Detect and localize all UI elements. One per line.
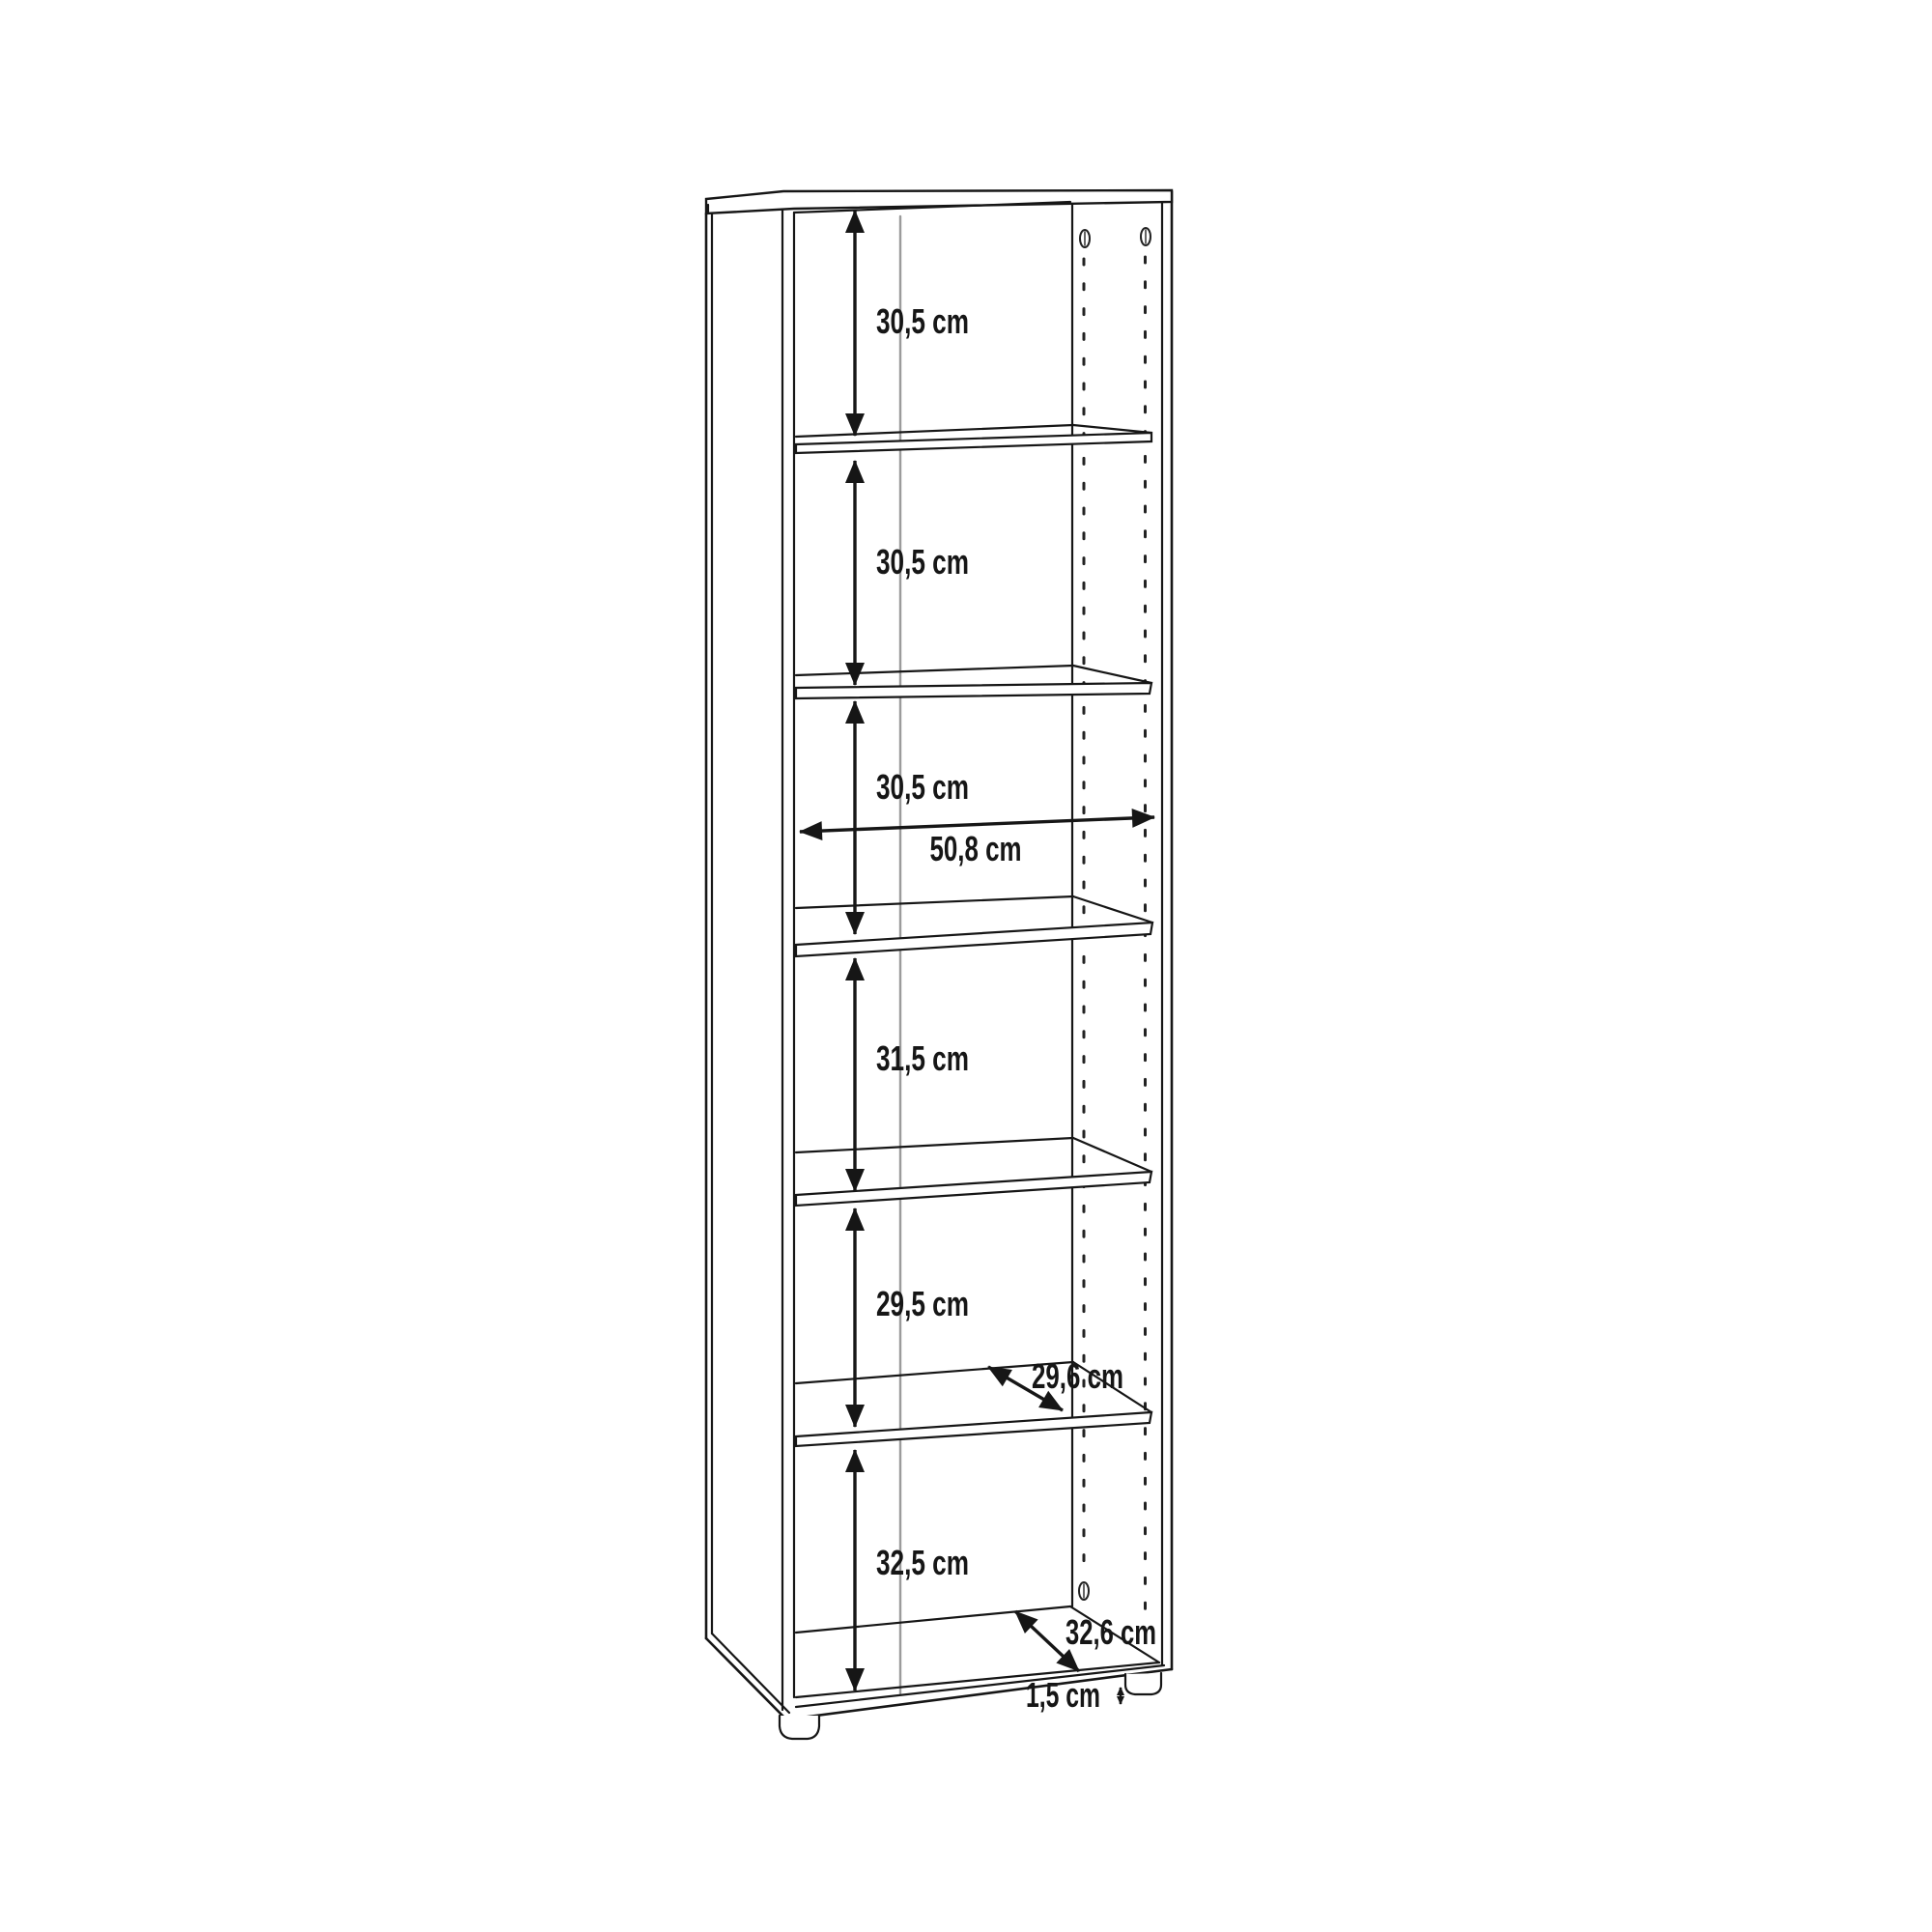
- left-foot: [780, 1716, 819, 1739]
- dim-label-compartment-5: 29,5 cm: [876, 1284, 969, 1323]
- left-side-panel: [706, 208, 794, 1719]
- shelf-front-face: [796, 683, 1151, 698]
- dim-label-foot-height: 1,5 cm: [1026, 1675, 1100, 1715]
- bookcase-dimension-diagram: 30,5 cm 30,5 cm 30,5 cm 31,5 cm 29,5 cm …: [0, 0, 1932, 1932]
- top-panel-slab: [706, 190, 1172, 213]
- shelf-1: [796, 425, 1151, 453]
- shelf-4: [796, 1138, 1151, 1206]
- peg-slot-icon: [1080, 230, 1090, 247]
- dim-label-compartment-4: 31,5 cm: [876, 1038, 969, 1078]
- dimension-labels: 30,5 cm 30,5 cm 30,5 cm 31,5 cm 29,5 cm …: [876, 301, 1156, 1715]
- dim-label-compartment-1: 30,5 cm: [876, 301, 969, 341]
- furniture-dimension-sheet: 30,5 cm 30,5 cm 30,5 cm 31,5 cm 29,5 cm …: [0, 0, 1932, 1932]
- shelf-back-edge: [796, 666, 1073, 675]
- left-wall-bottom-slant-inner: [712, 1634, 789, 1713]
- shelf-end-edge: [1073, 425, 1151, 433]
- plinth-mid-edge: [796, 1665, 1164, 1707]
- floor-back-edge: [796, 1606, 1070, 1633]
- shelf-back-edge: [796, 425, 1073, 437]
- shelf-front-face: [796, 433, 1151, 453]
- dim-label-bottom-depth: 32,6 cm: [1065, 1612, 1156, 1652]
- peg-slot-icon: [1079, 1582, 1089, 1600]
- shelf-back-edge: [796, 896, 1073, 908]
- peg-slot-icon: [1141, 228, 1151, 245]
- shelf-end-edge: [1073, 666, 1151, 683]
- dim-label-compartment-3: 30,5 cm: [876, 767, 969, 807]
- right-foot: [1125, 1673, 1161, 1694]
- shelf-2: [796, 666, 1151, 698]
- shelf-front-face: [796, 923, 1152, 956]
- left-wall-bottom-slant-outer: [706, 1638, 786, 1719]
- shelf-end-edge: [1073, 1138, 1151, 1172]
- dim-label-compartment-2: 30,5 cm: [876, 542, 969, 582]
- dim-label-inner-width: 50,8 cm: [930, 829, 1022, 868]
- top-panel: [706, 190, 1172, 213]
- cabinet-structure: [706, 190, 1172, 1739]
- dim-label-shelf-depth: 29,6 cm: [1032, 1356, 1123, 1396]
- shelf-front-face: [796, 1412, 1151, 1446]
- floor-front-edge: [796, 1662, 1159, 1697]
- plinth-bottom-edge: [786, 1669, 1172, 1719]
- shelf-front-face: [796, 1172, 1151, 1206]
- shelf-back-edge: [796, 1138, 1073, 1152]
- shelf-3: [796, 896, 1152, 956]
- dim-label-compartment-6: 32,5 cm: [876, 1543, 969, 1582]
